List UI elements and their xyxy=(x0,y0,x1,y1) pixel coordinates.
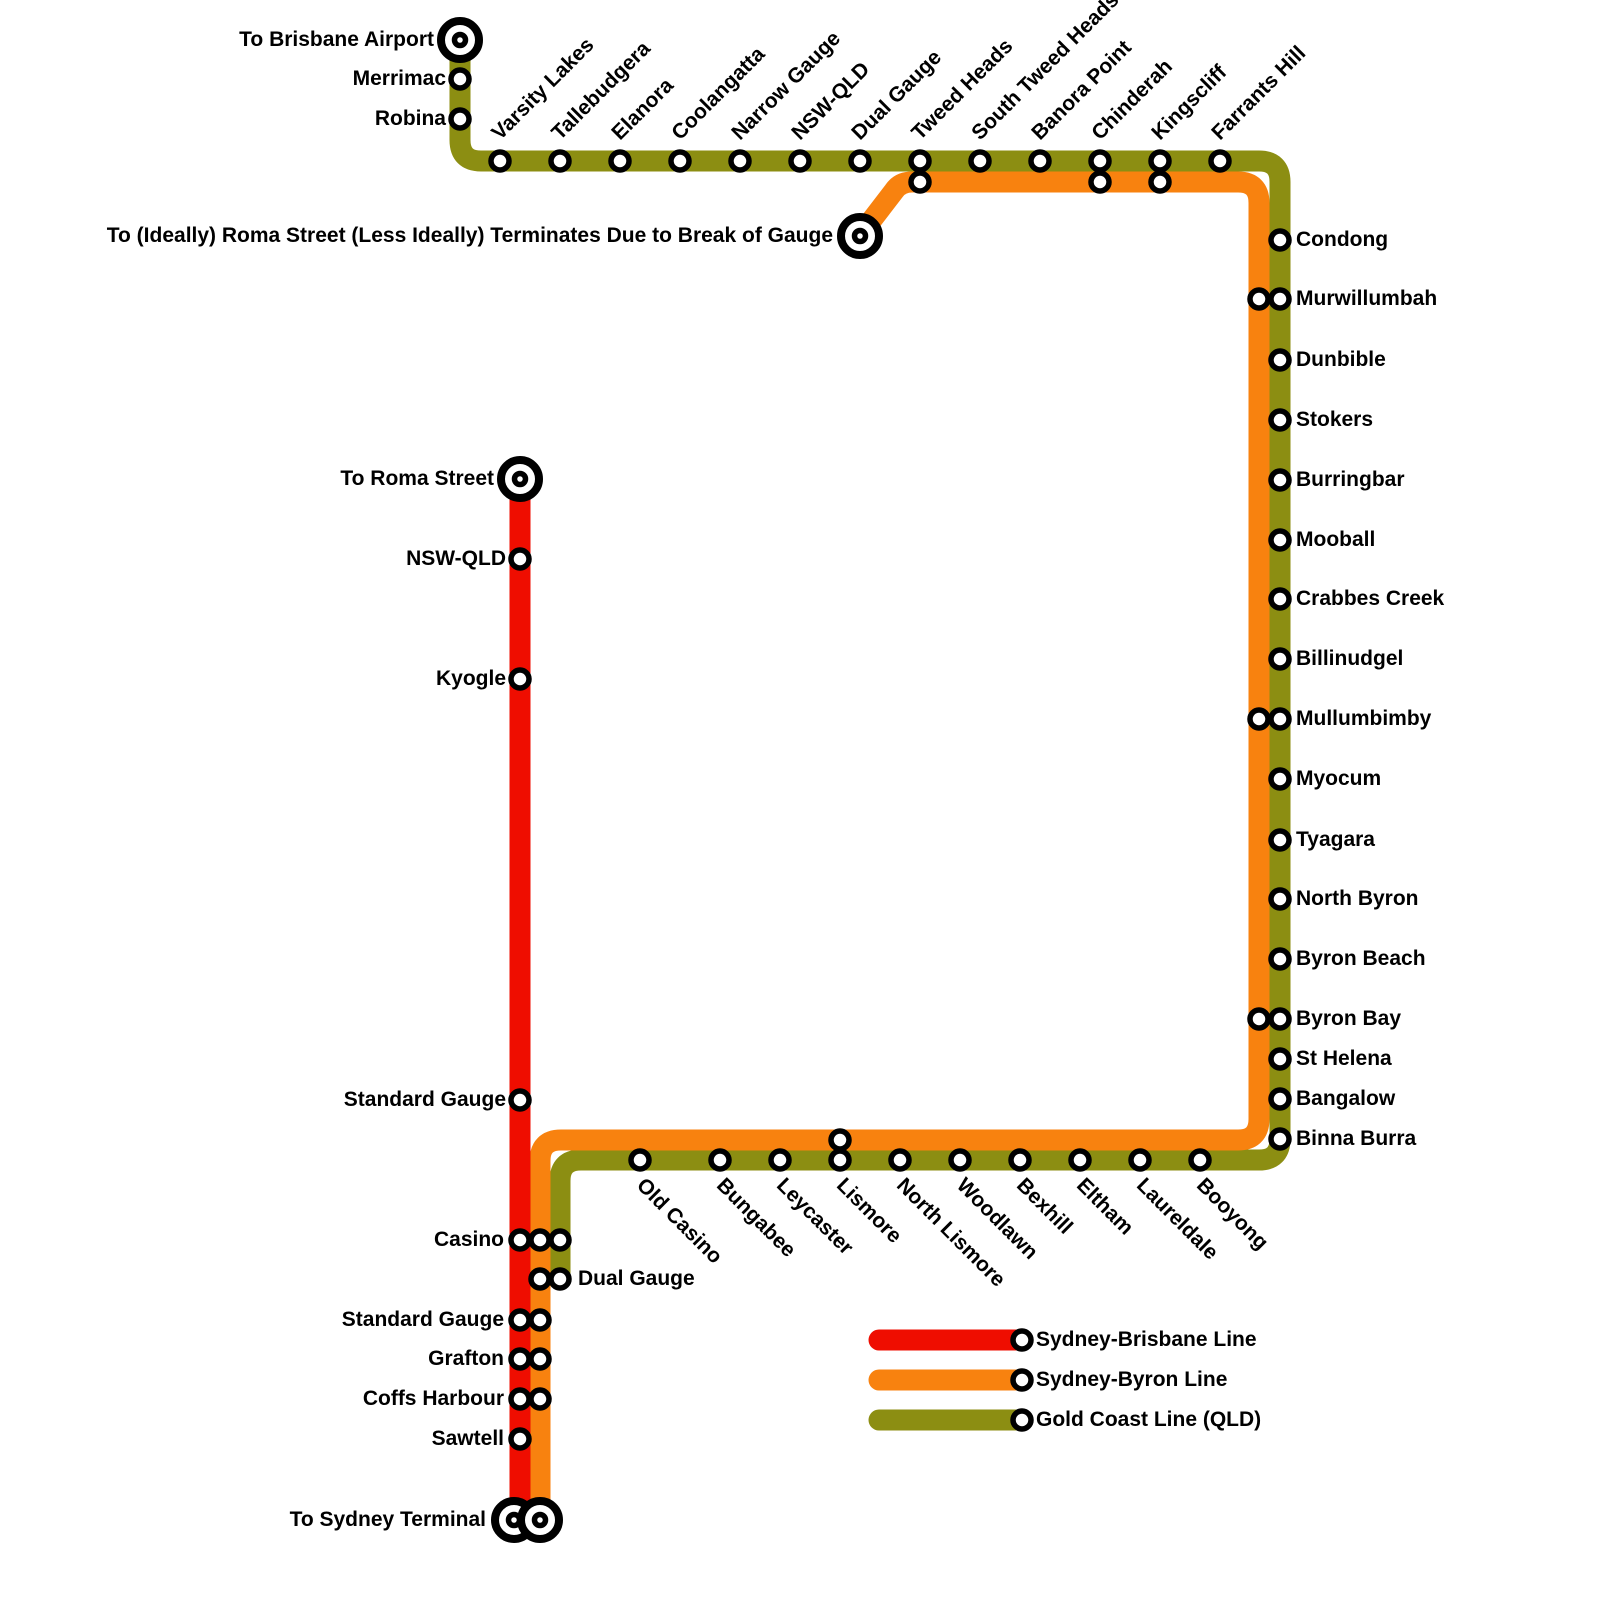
legend-station-icon xyxy=(1013,1411,1031,1429)
terminus-label-sydney-terminal: To Sydney Terminal xyxy=(290,1507,486,1533)
station-label: Binna Burra xyxy=(1296,1126,1416,1152)
station-marker xyxy=(551,152,569,170)
station-label: Mullumbimby xyxy=(1296,706,1431,732)
station-label: Merrimac xyxy=(353,66,446,92)
station-marker xyxy=(551,1270,569,1288)
legend-station-icon xyxy=(1013,1371,1031,1389)
station-label: Coffs Harbour xyxy=(363,1386,504,1412)
station-label: Myocum xyxy=(1296,766,1381,792)
station-marker xyxy=(1271,471,1289,489)
station-marker xyxy=(1271,351,1289,369)
legend-station-icon xyxy=(1013,1331,1031,1349)
station-label: Byron Beach xyxy=(1296,946,1426,972)
station-label: Bangalow xyxy=(1296,1086,1395,1112)
station-label: Stokers xyxy=(1296,407,1373,433)
station-marker xyxy=(511,1091,529,1109)
station-label: Casino xyxy=(434,1227,504,1253)
station-marker xyxy=(951,1151,969,1169)
station-marker xyxy=(631,1151,649,1169)
station-marker xyxy=(851,152,869,170)
station-marker xyxy=(1250,1010,1268,1028)
station-marker xyxy=(511,550,529,568)
station-label: Sawtell xyxy=(432,1426,504,1452)
station-marker xyxy=(1271,950,1289,968)
station-label: Condong xyxy=(1296,227,1388,253)
station-label: Robina xyxy=(375,106,446,132)
station-marker xyxy=(611,152,629,170)
terminus-marker-brisbane-airport xyxy=(441,21,479,59)
rail-map: To Brisbane Airport Merrimac Robina To (… xyxy=(0,0,1600,1600)
station-marker xyxy=(1271,650,1289,668)
station-label: NSW-QLD xyxy=(406,546,506,572)
station-label: Kyogle xyxy=(436,666,506,692)
station-label: Crabbes Creek xyxy=(1296,586,1444,612)
station-marker xyxy=(451,110,469,128)
station-marker xyxy=(1271,1090,1289,1108)
station-marker xyxy=(511,1350,529,1368)
station-label: Standard Gauge xyxy=(344,1087,506,1113)
station-marker xyxy=(1151,152,1169,170)
terminus-marker-sydney-terminal xyxy=(495,1501,559,1539)
legend-label-sydney-byron: Sydney-Byron Line xyxy=(1036,1367,1227,1393)
station-label: North Byron xyxy=(1296,886,1419,912)
station-marker xyxy=(1271,1130,1289,1148)
station-marker xyxy=(1271,1050,1289,1068)
terminus-marker-break-of-gauge xyxy=(841,217,879,255)
station-marker xyxy=(831,1131,849,1149)
station-marker xyxy=(911,173,929,191)
station-marker xyxy=(511,1390,529,1408)
station-marker xyxy=(1271,531,1289,549)
station-marker xyxy=(1131,1151,1149,1169)
station-marker xyxy=(1071,1151,1089,1169)
station-label: Grafton xyxy=(428,1346,504,1372)
station-marker xyxy=(1031,152,1049,170)
station-marker xyxy=(1271,831,1289,849)
station-label: Tyagara xyxy=(1296,827,1375,853)
terminus-marker-roma-street xyxy=(501,460,539,498)
station-marker xyxy=(1011,1151,1029,1169)
terminus-label-break-of-gauge: To (Ideally) Roma Street (Less Ideally) … xyxy=(107,223,833,249)
legend-label-gold-coast: Gold Coast Line (QLD) xyxy=(1036,1407,1261,1433)
station-marker xyxy=(531,1270,549,1288)
legend-label-sydney-brisbane: Sydney-Brisbane Line xyxy=(1036,1327,1257,1353)
station-label: Standard Gauge xyxy=(342,1307,504,1333)
station-label: St Helena xyxy=(1296,1046,1392,1072)
station-label: Murwillumbah xyxy=(1296,286,1437,312)
station-marker xyxy=(1091,173,1109,191)
station-marker xyxy=(1271,710,1289,728)
station-marker xyxy=(1271,770,1289,788)
station-marker xyxy=(511,670,529,688)
station-marker xyxy=(511,1430,529,1448)
station-label: Mooball xyxy=(1296,527,1375,553)
station-marker xyxy=(531,1390,549,1408)
station-marker xyxy=(1271,1010,1289,1028)
station-marker xyxy=(531,1231,549,1249)
terminus-label-brisbane-airport: To Brisbane Airport xyxy=(239,27,434,53)
station-marker xyxy=(831,1151,849,1169)
station-marker xyxy=(911,152,929,170)
station-marker xyxy=(551,1231,569,1249)
station-label: Burringbar xyxy=(1296,467,1405,493)
station-marker xyxy=(891,1151,909,1169)
station-marker xyxy=(971,152,989,170)
station-marker xyxy=(1250,710,1268,728)
station-marker xyxy=(1211,152,1229,170)
station-marker xyxy=(1271,890,1289,908)
terminus-label-roma-street: To Roma Street xyxy=(340,466,494,492)
station-marker xyxy=(1151,173,1169,191)
station-label: Byron Bay xyxy=(1296,1006,1401,1032)
station-marker xyxy=(511,1311,529,1329)
station-label: Dual Gauge xyxy=(578,1266,695,1292)
station-marker xyxy=(1250,290,1268,308)
station-marker xyxy=(511,1231,529,1249)
station-marker xyxy=(451,70,469,88)
station-marker xyxy=(1271,590,1289,608)
station-marker xyxy=(771,1151,789,1169)
station-marker xyxy=(1191,1151,1209,1169)
station-marker xyxy=(1271,411,1289,429)
station-marker xyxy=(1091,152,1109,170)
station-label: Dunbible xyxy=(1296,347,1386,373)
station-marker xyxy=(671,152,689,170)
station-marker xyxy=(491,152,509,170)
station-marker xyxy=(531,1311,549,1329)
station-marker xyxy=(791,152,809,170)
sydney-byron-line-path xyxy=(540,182,1259,1520)
station-label: Billinudgel xyxy=(1296,646,1403,672)
station-marker xyxy=(1271,231,1289,249)
station-marker xyxy=(711,1151,729,1169)
station-marker xyxy=(1271,290,1289,308)
station-marker xyxy=(731,152,749,170)
station-marker xyxy=(531,1350,549,1368)
